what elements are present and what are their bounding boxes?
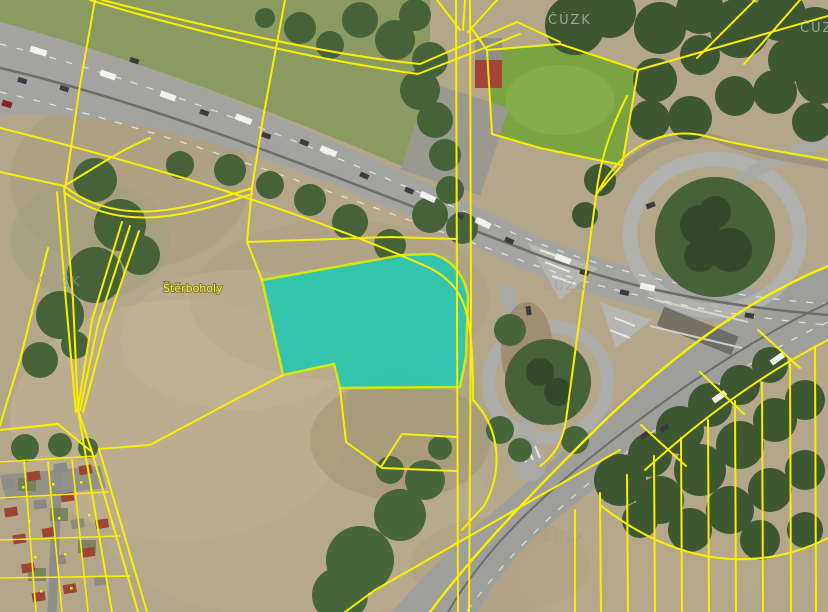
- cuzk-watermark: ČÚZK: [38, 274, 82, 290]
- cuzk-watermark: ČÚZK: [800, 20, 828, 36]
- place-label: Štěrboholy: [163, 282, 223, 295]
- cuzk-watermark: ČÚZK: [543, 278, 587, 294]
- aerial-cadastral-map[interactable]: ČÚZK ČÚZK ČÚZK ČÚZK ČÚZK Štěrboholy: [0, 0, 828, 612]
- highlighted-parcel[interactable]: [262, 254, 468, 388]
- cuzk-watermark: ČÚZK: [543, 529, 587, 545]
- cuzk-watermark: ČÚZK: [548, 12, 592, 28]
